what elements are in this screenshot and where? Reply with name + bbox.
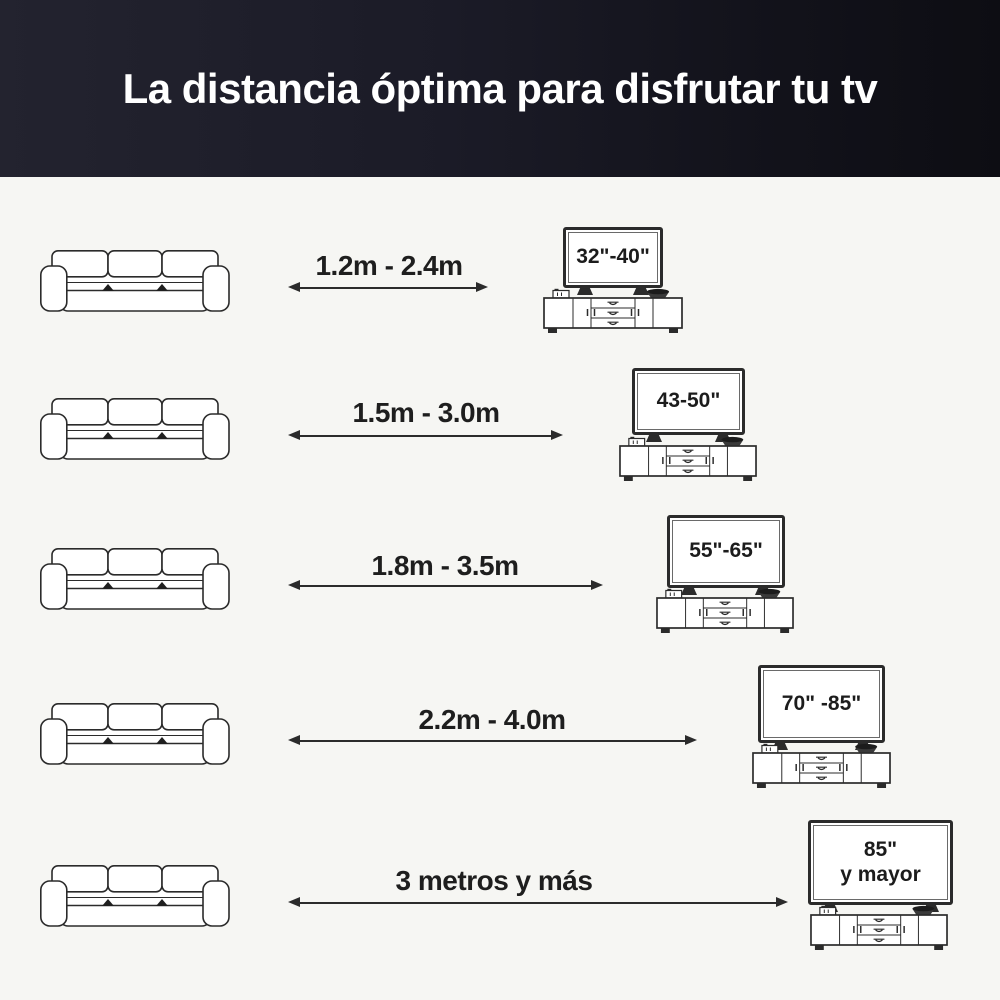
tv-screen: 32"-40" (568, 232, 658, 283)
double-headed-arrow-icon (288, 429, 563, 443)
sofa-icon (40, 548, 230, 610)
tv-screen: 70" -85" (763, 670, 880, 738)
sofa-icon (40, 250, 230, 312)
tv-stand-icon (543, 288, 683, 334)
arrow-line (293, 287, 483, 289)
tv-size-label-line2: y mayor (840, 863, 921, 887)
tv-icon: 43-50" (632, 368, 745, 435)
arrow-line (293, 435, 558, 437)
double-headed-arrow-icon (288, 734, 697, 748)
sofa-icon (40, 865, 230, 927)
header-banner: La distancia óptima para disfrutar tu tv (0, 0, 1000, 177)
tv-screen: 55"-65" (672, 520, 780, 583)
page-title: La distancia óptima para disfrutar tu tv (123, 65, 878, 113)
arrow-line (293, 585, 598, 587)
tv-screen: 85" y mayor (813, 825, 948, 900)
tv-stand-icon (656, 588, 794, 634)
arrow-line (293, 740, 692, 742)
sofa-icon (40, 703, 230, 765)
tv-size-label: 55"-65" (689, 539, 763, 563)
distance-label: 1.5m - 3.0m (352, 397, 499, 429)
distance-label: 3 metros y más (396, 865, 593, 897)
tv-stand-icon (619, 436, 757, 482)
distance-label: 1.8m - 3.5m (371, 550, 518, 582)
tv-icon: 32"-40" (563, 227, 663, 288)
double-headed-arrow-icon (288, 896, 788, 910)
tv-size-label: 70" -85" (782, 692, 861, 716)
tv-size-label: 32"-40" (576, 245, 650, 269)
tv-stand-icon (752, 743, 891, 789)
tv-icon: 55"-65" (667, 515, 785, 588)
tv-stand-icon (810, 905, 948, 951)
tv-screen: 43-50" (637, 373, 740, 430)
tv-size-label: 43-50" (657, 389, 721, 413)
tv-icon: 70" -85" (758, 665, 885, 743)
double-headed-arrow-icon (288, 579, 603, 593)
double-headed-arrow-icon (288, 281, 488, 295)
tv-distance-infographic: La distancia óptima para disfrutar tu tv… (0, 0, 1000, 1000)
sofa-icon (40, 398, 230, 460)
distance-label: 2.2m - 4.0m (418, 704, 565, 736)
arrow-line (293, 902, 783, 904)
distance-label: 1.2m - 2.4m (315, 250, 462, 282)
tv-icon: 85" y mayor (808, 820, 953, 905)
tv-size-label: 85" (864, 838, 897, 862)
